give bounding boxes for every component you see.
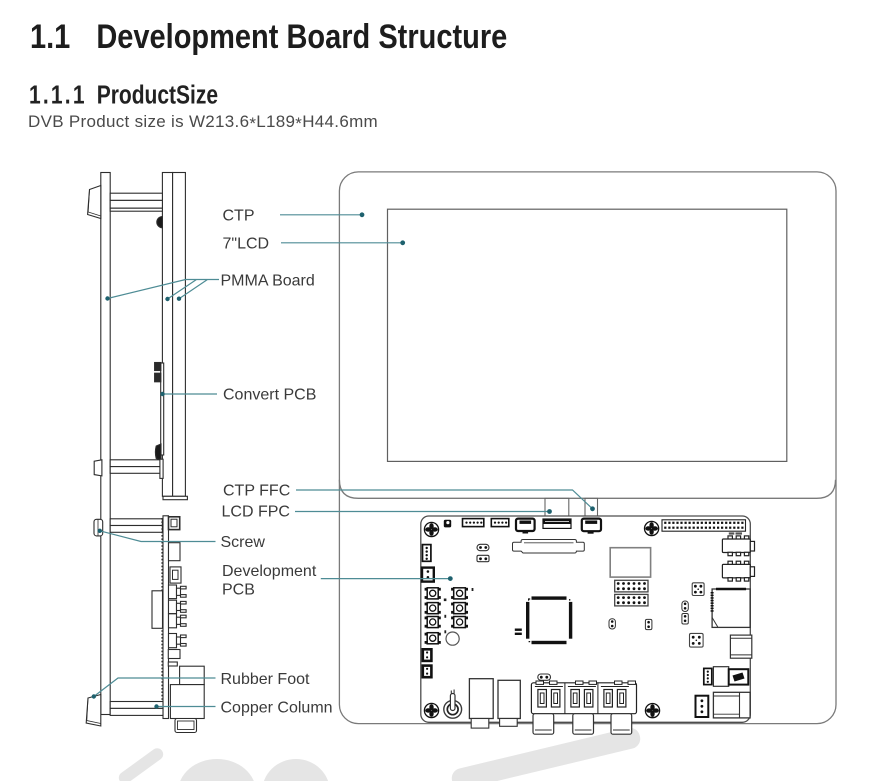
- svg-text:7"LCD: 7"LCD: [223, 235, 270, 252]
- svg-text:Convert PCB: Convert PCB: [223, 387, 316, 404]
- svg-text:Screw: Screw: [221, 534, 266, 551]
- svg-text:CTP: CTP: [223, 207, 255, 224]
- svg-text:Copper Column: Copper Column: [221, 699, 333, 716]
- svg-text:PCB: PCB: [222, 581, 255, 598]
- svg-text:CTP FFC: CTP FFC: [223, 482, 290, 499]
- svg-text:LCD FPC: LCD FPC: [222, 503, 290, 520]
- svg-text:Development: Development: [222, 563, 317, 580]
- svg-text:PMMA Board: PMMA Board: [221, 272, 315, 289]
- svg-text:Rubber Foot: Rubber Foot: [221, 671, 310, 688]
